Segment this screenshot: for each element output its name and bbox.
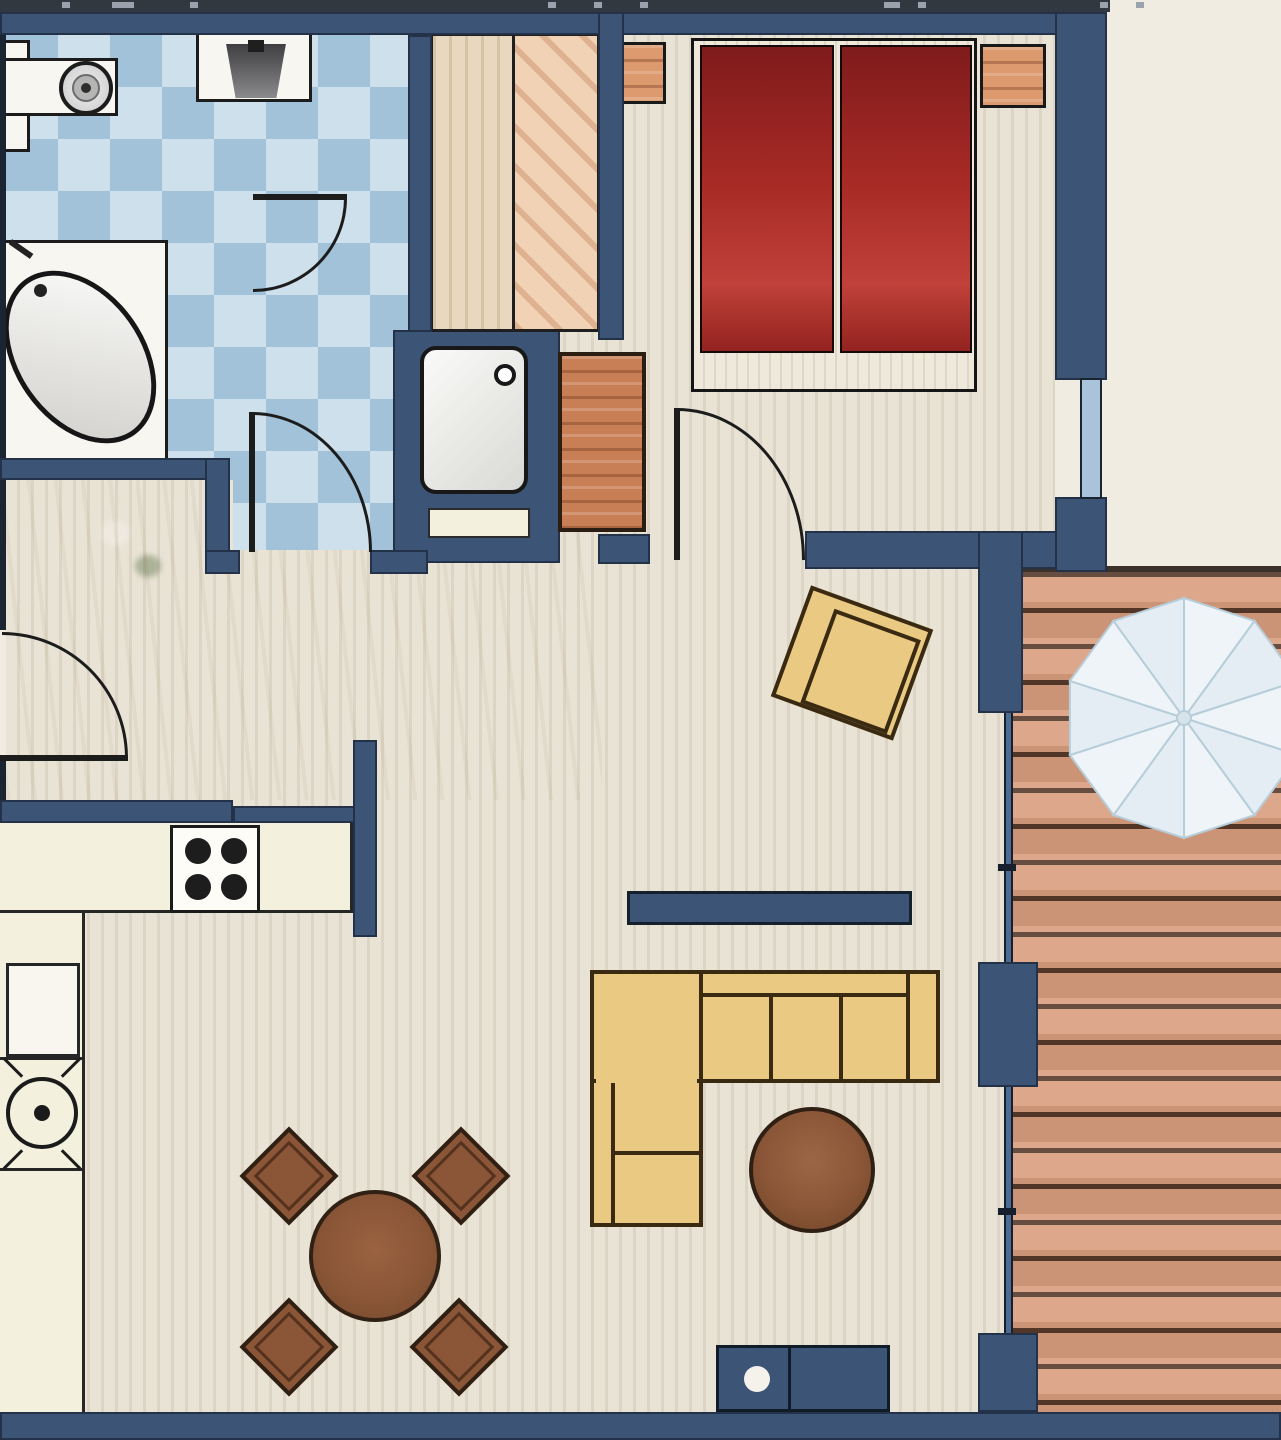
floor-plan [0,0,1281,1440]
dishwasher [6,963,80,1057]
wall-kitchen-thick [0,800,233,823]
sink-drain-dot [34,1105,50,1121]
sink-top-line [0,1057,85,1060]
cut-dimension-tick [594,2,602,8]
sink-bottom-line [0,1168,85,1171]
bathtub-drain-dot [34,284,47,297]
burner-icon [221,874,247,900]
glass-door-upper [1004,713,1013,962]
wall-bathroom-lower-right [370,550,428,574]
fireplace-unit [716,1345,890,1412]
wall-bedroom-right-upper [1055,12,1107,380]
plant-texture [100,520,130,546]
wall-bathroom-lower-left [205,550,240,574]
cut-dimension-tick [112,2,134,8]
cut-dimension-tick [1136,2,1144,8]
burner-icon [185,874,211,900]
hall-dresser [558,352,646,532]
sofa-armrest-line [906,974,910,1079]
chair-seat [254,1312,325,1383]
bedroom-window [1080,378,1102,499]
tv-board [627,891,912,925]
fireplace-divider [788,1348,791,1409]
parasol [1054,588,1281,848]
nightstand-left [618,42,666,104]
cut-dimension-tick [918,2,926,8]
plant [84,504,188,608]
fireplace-dot [744,1366,770,1392]
plan-cut-edge-strip [0,0,1110,12]
wall-left-upper [0,35,6,630]
glass-door-handle-upper [998,864,1016,871]
wall-kitchen-vertical [353,740,377,937]
wall-bedroom-right-lower [1055,497,1107,572]
coffee-table [749,1107,875,1233]
wall-terrace-stem [978,531,1023,713]
beige-outside-top-right [1107,0,1281,566]
dining-table [309,1190,441,1322]
wall-kitchen-thin [233,806,357,823]
wall-bedroom-left [598,12,624,340]
nightstand-right [980,44,1046,108]
wall-bathroom-bottom [0,458,230,480]
sofa-backrest-line [703,993,908,997]
chair-seat [254,1141,325,1212]
hob [170,825,260,913]
washbasin-drain-dot [81,83,91,93]
wall-terrace-corner [978,1333,1038,1412]
shower-shelf [428,508,530,538]
chair-seat [426,1141,497,1212]
wall-bedroom-bottom-left [598,534,650,564]
sofa-seat-line [839,997,843,1079]
sofa-divider [699,974,703,1079]
cut-dimension-tick [548,2,556,8]
wardrobe-right-door [515,36,597,329]
burner-icon [221,838,247,864]
burner-icon [185,838,211,864]
cut-dimension-tick [1100,2,1108,8]
wardrobe [430,33,600,332]
wall-top [0,12,1107,35]
cut-dimension-tick [640,2,648,8]
corner-sofa-top [590,970,940,1083]
wall-bottom [0,1412,1281,1440]
shower-drain [494,364,516,386]
plant-texture [135,555,161,577]
cut-dimension-tick [62,2,70,8]
cut-dimension-tick [190,2,198,8]
wardrobe-left-door [433,36,515,329]
chair-seat [424,1312,495,1383]
wall-bathroom-right-stub [408,35,432,332]
sofa-seat-line [769,997,773,1079]
wall-terrace-pillar [978,962,1038,1087]
sofa-left-seat-line [615,1151,699,1155]
glass-door-handle-lower [998,1208,1016,1215]
cut-dimension-tick [884,2,900,8]
toilet-flush-button [248,40,264,52]
duvet-left [700,45,834,353]
duvet-right [840,45,972,353]
